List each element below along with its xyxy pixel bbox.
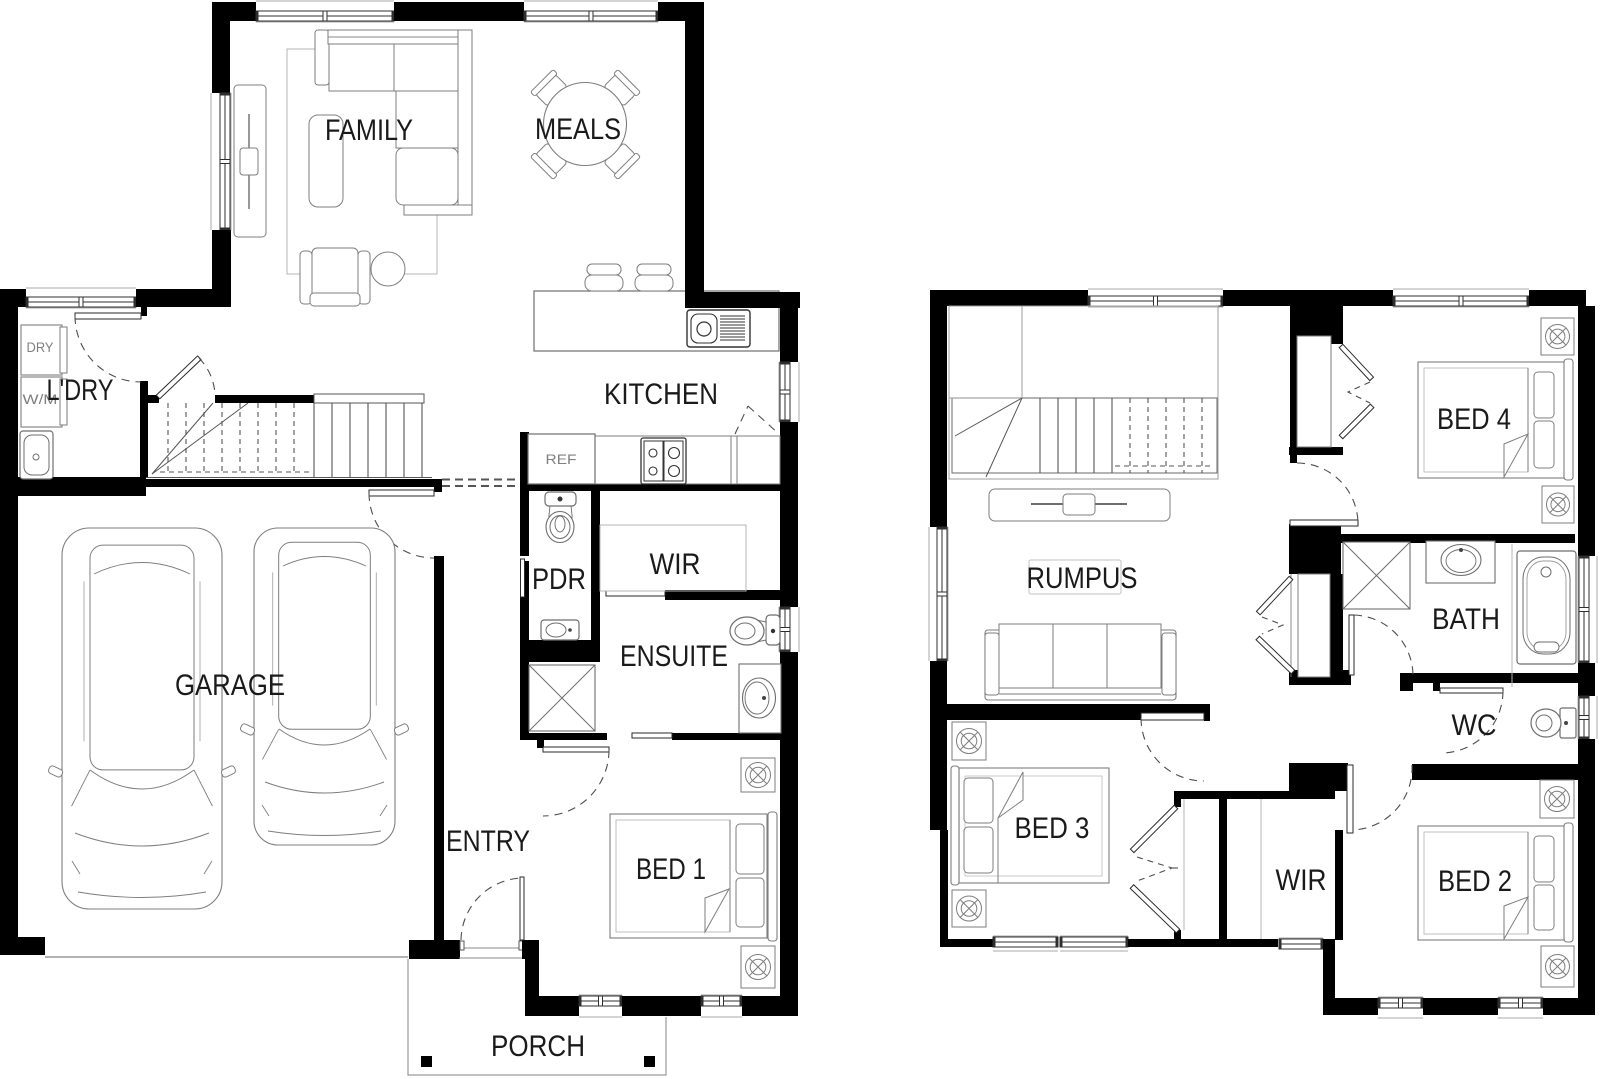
- svg-text:PDR: PDR: [532, 563, 586, 596]
- svg-text:PORCH: PORCH: [491, 1030, 585, 1063]
- svg-text:MEALS: MEALS: [535, 113, 621, 146]
- svg-text:BED 3: BED 3: [1015, 812, 1090, 845]
- svg-text:BATH: BATH: [1432, 603, 1500, 636]
- svg-text:KITCHEN: KITCHEN: [604, 378, 718, 411]
- svg-text:RUMPUS: RUMPUS: [1027, 562, 1138, 595]
- svg-text:FAMILY: FAMILY: [325, 114, 413, 147]
- svg-text:WIR: WIR: [1276, 864, 1327, 897]
- svg-text:WIR: WIR: [650, 548, 701, 581]
- svg-text:BED 1: BED 1: [636, 853, 706, 886]
- svg-text:GARAGE: GARAGE: [175, 669, 285, 702]
- svg-text:L'DRY: L'DRY: [47, 374, 114, 407]
- svg-text:BED 4: BED 4: [1437, 403, 1511, 436]
- svg-text:DRY: DRY: [27, 339, 55, 355]
- svg-text:ENTRY: ENTRY: [446, 825, 530, 858]
- svg-text:WC: WC: [1452, 709, 1497, 742]
- svg-text:BED 2: BED 2: [1438, 865, 1512, 898]
- svg-text:REF: REF: [546, 451, 577, 467]
- svg-text:ENSUITE: ENSUITE: [620, 640, 728, 673]
